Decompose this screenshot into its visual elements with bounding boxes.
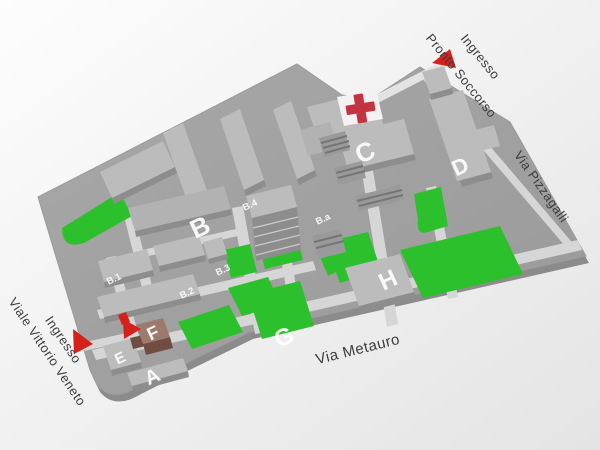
campus-map: A B C D E F G H B.1 B.2 B.3 B.4 B.a Ingr… bbox=[0, 0, 600, 450]
